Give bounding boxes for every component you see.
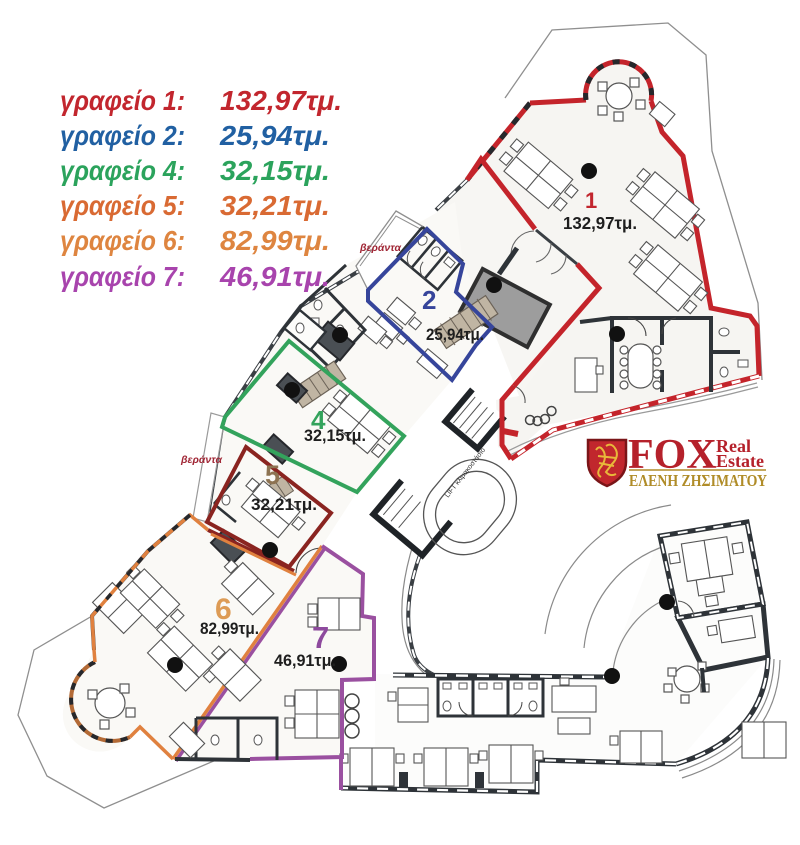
svg-text:5: 5 bbox=[265, 460, 280, 490]
svg-text:Estate: Estate bbox=[716, 451, 764, 471]
svg-text:132,97τμ.: 132,97τμ. bbox=[563, 213, 637, 233]
svg-text:7: 7 bbox=[312, 620, 329, 655]
svg-text:32,21τμ.: 32,21τμ. bbox=[220, 190, 330, 221]
svg-text:32,15τμ.: 32,15τμ. bbox=[304, 427, 366, 445]
svg-text:46,91τμ.: 46,91τμ. bbox=[274, 652, 336, 670]
svg-text:γραφείο 7:: γραφείο 7: bbox=[60, 261, 185, 292]
svg-text:βεράντα: βεράντα bbox=[359, 242, 402, 254]
svg-text:1: 1 bbox=[585, 188, 597, 213]
svg-text:132,97τμ.: 132,97τμ. bbox=[220, 85, 342, 116]
svg-text:82,99τμ.: 82,99τμ. bbox=[200, 620, 259, 638]
svg-text:32,15τμ.: 32,15τμ. bbox=[220, 155, 330, 186]
svg-text:γραφείο 6:: γραφείο 6: bbox=[60, 225, 185, 256]
svg-text:γραφείο 1:: γραφείο 1: bbox=[60, 85, 185, 116]
svg-text:46,91τμ.: 46,91τμ. bbox=[219, 261, 330, 292]
svg-text:25,94τμ.: 25,94τμ. bbox=[219, 120, 330, 151]
svg-text:25,94τμ.: 25,94τμ. bbox=[426, 326, 484, 344]
svg-text:γραφείο 5:: γραφείο 5: bbox=[60, 190, 185, 221]
svg-text:ΕΛΕΝΗ ΖΗΣΙΜΑΤΟΥ: ΕΛΕΝΗ ΖΗΣΙΜΑΤΟΥ bbox=[629, 471, 767, 490]
svg-text:82,99τμ.: 82,99τμ. bbox=[220, 225, 330, 256]
svg-text:32,21τμ.: 32,21τμ. bbox=[251, 496, 317, 514]
svg-text:βεράντα: βεράντα bbox=[180, 454, 223, 466]
svg-text:γραφείο 2:: γραφείο 2: bbox=[60, 120, 185, 151]
svg-text:γραφείο 4:: γραφείο 4: bbox=[60, 155, 185, 186]
svg-text:2: 2 bbox=[422, 285, 436, 315]
